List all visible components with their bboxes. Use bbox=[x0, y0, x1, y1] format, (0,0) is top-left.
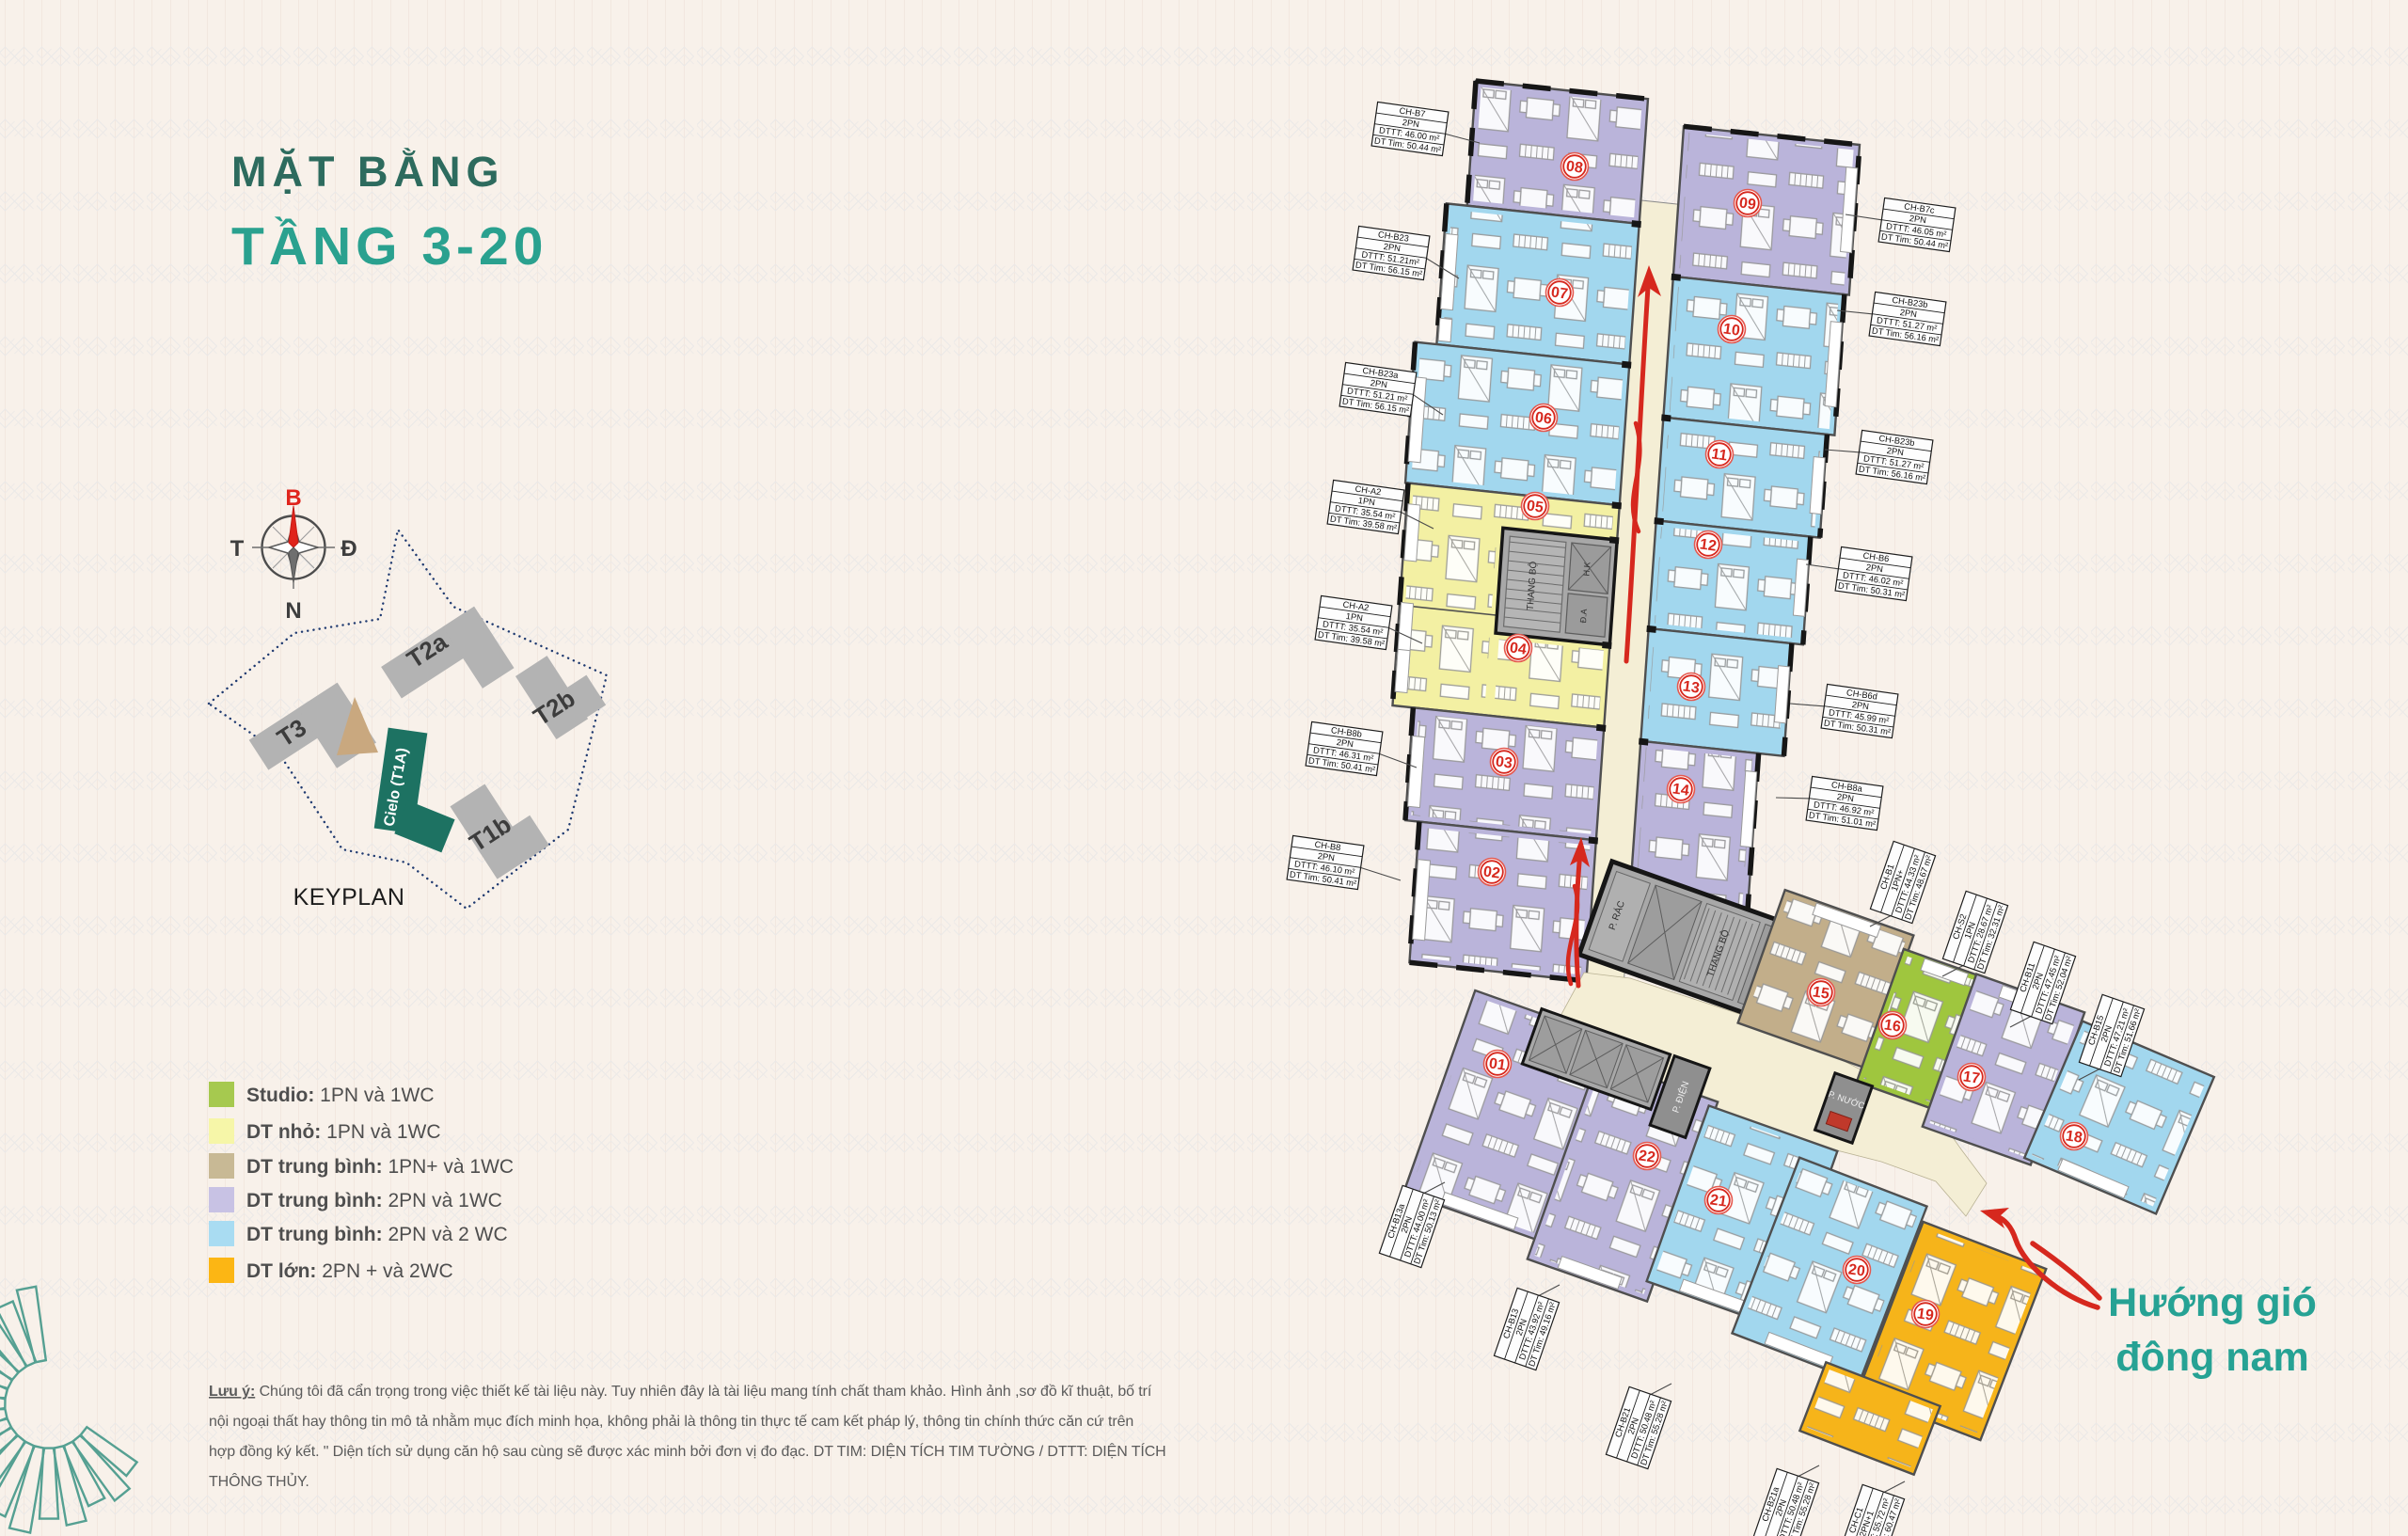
svg-text:MẶT BẰNG: MẶT BẰNG bbox=[231, 148, 504, 196]
svg-text:08: 08 bbox=[1565, 158, 1584, 176]
svg-text:B: B bbox=[285, 485, 301, 511]
svg-text:DT trung bình: 2PN và 1WC: DT trung bình: 2PN và 1WC bbox=[246, 1190, 502, 1211]
svg-text:DT lớn: 2PN + và 2WC: DT lớn: 2PN + và 2WC bbox=[246, 1260, 453, 1282]
svg-text:22: 22 bbox=[1638, 1148, 1656, 1165]
svg-text:THÔNG THỦY.: THÔNG THỦY. bbox=[209, 1472, 309, 1490]
svg-text:04: 04 bbox=[1509, 640, 1528, 657]
svg-text:11: 11 bbox=[1710, 446, 1728, 464]
svg-text:05: 05 bbox=[1526, 498, 1545, 515]
svg-text:DT trung bình: 1PN+ và 1WC: DT trung bình: 1PN+ và 1WC bbox=[246, 1156, 514, 1178]
svg-text:13: 13 bbox=[1682, 678, 1701, 696]
svg-text:09: 09 bbox=[1738, 195, 1757, 213]
svg-text:21: 21 bbox=[1709, 1192, 1728, 1210]
svg-text:KEYPLAN: KEYPLAN bbox=[293, 884, 405, 911]
svg-text:N: N bbox=[285, 598, 301, 624]
svg-text:03: 03 bbox=[1495, 753, 1513, 771]
svg-text:Hướng gió: Hướng gió bbox=[2108, 1280, 2317, 1325]
svg-text:14: 14 bbox=[1671, 781, 1690, 799]
svg-text:15: 15 bbox=[1812, 984, 1830, 1002]
svg-text:10: 10 bbox=[1722, 321, 1741, 339]
svg-text:07: 07 bbox=[1550, 284, 1569, 302]
svg-text:TẦNG 3-20: TẦNG 3-20 bbox=[231, 215, 547, 277]
svg-text:hợp đồng ký kết. " Diện tích s: hợp đồng ký kết. " Diện tích sử dụng căn… bbox=[209, 1442, 1166, 1460]
svg-text:01: 01 bbox=[1488, 1055, 1507, 1073]
svg-text:Đ: Đ bbox=[341, 536, 356, 562]
svg-text:Studio: 1PN và 1WC: Studio: 1PN và 1WC bbox=[246, 1085, 435, 1106]
svg-text:DT nhỏ: 1PN và 1WC: DT nhỏ: 1PN và 1WC bbox=[246, 1121, 441, 1143]
svg-text:18: 18 bbox=[2065, 1128, 2083, 1146]
svg-text:nội ngoại thất hay thông tin m: nội ngoại thất hay thông tin mô tả nhằm … bbox=[209, 1412, 1133, 1430]
svg-text:06: 06 bbox=[1534, 409, 1553, 427]
svg-text:H.K: H.K bbox=[1581, 562, 1592, 577]
svg-text:20: 20 bbox=[1847, 1261, 1866, 1279]
svg-text:đông nam: đông nam bbox=[2115, 1335, 2308, 1380]
svg-text:16: 16 bbox=[1883, 1017, 1902, 1035]
svg-text:Đ.A: Đ.A bbox=[1578, 609, 1589, 624]
svg-text:17: 17 bbox=[1962, 1069, 1981, 1086]
svg-text:T: T bbox=[230, 536, 245, 562]
svg-text:Lưu ý: Chúng tôi đã cẩn trọng: Lưu ý: Chúng tôi đã cẩn trọng trong việc… bbox=[209, 1383, 1152, 1400]
svg-text:19: 19 bbox=[1916, 1306, 1935, 1323]
svg-text:02: 02 bbox=[1482, 863, 1501, 881]
svg-text:DT trung bình: 2PN và 2 WC: DT trung bình: 2PN và 2 WC bbox=[246, 1224, 508, 1245]
svg-text:12: 12 bbox=[1699, 536, 1718, 554]
